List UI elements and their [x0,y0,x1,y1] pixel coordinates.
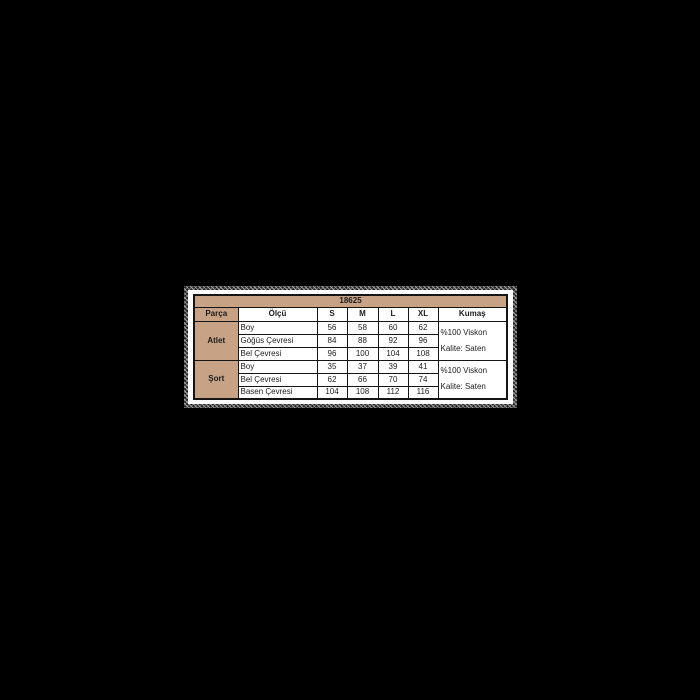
measure-value: 112 [378,386,408,399]
fabric-line: Kalite: Saten [441,383,505,391]
col-header-part: Parça [194,307,238,321]
section-name-atlet: Atlet [194,321,238,360]
measure-value: 96 [408,334,438,347]
col-header-measure: Ölçü [238,307,317,321]
measure-label: Basen Çevresi [238,386,317,399]
measure-value: 84 [317,334,347,347]
measure-value: 56 [317,321,347,334]
table-row: Parça Ölçü S M L XL Kumaş [194,307,507,321]
measure-value: 66 [347,373,378,386]
measure-value: 60 [378,321,408,334]
table-row: Şort Boy 35 37 39 41 %100 Viskon Kalite:… [194,360,507,373]
col-header-fabric: Kumaş [438,307,507,321]
measure-value: 62 [408,321,438,334]
measure-value: 74 [408,373,438,386]
measure-value: 104 [378,347,408,360]
col-header-size-xl: XL [408,307,438,321]
measure-value: 58 [347,321,378,334]
fabric-line: %100 Viskon [441,367,505,375]
table-row: Atlet Boy 56 58 60 62 %100 Viskon Kalite… [194,321,507,334]
measure-value: 108 [347,386,378,399]
measure-label: Boy [238,360,317,373]
measure-value: 108 [408,347,438,360]
product-code: 18625 [194,295,507,307]
size-chart-card: 18625 Parça Ölçü S M L XL Kumaş Atlet Bo… [188,290,513,404]
fabric-line: %100 Viskon [441,329,505,337]
measure-value: 104 [317,386,347,399]
measure-value: 92 [378,334,408,347]
measure-value: 39 [378,360,408,373]
black-background: 18625 Parça Ölçü S M L XL Kumaş Atlet Bo… [0,0,700,700]
fabric-line: Kalite: Saten [441,345,505,353]
measure-label: Boy [238,321,317,334]
col-header-size-l: L [378,307,408,321]
measure-value: 70 [378,373,408,386]
measure-value: 41 [408,360,438,373]
speckled-frame: 18625 Parça Ölçü S M L XL Kumaş Atlet Bo… [184,286,517,408]
table-row: 18625 [194,295,507,307]
size-chart-table: 18625 Parça Ölçü S M L XL Kumaş Atlet Bo… [193,294,508,400]
measure-value: 62 [317,373,347,386]
fabric-info-atlet: %100 Viskon Kalite: Saten [438,321,507,360]
measure-value: 100 [347,347,378,360]
col-header-size-m: M [347,307,378,321]
measure-value: 116 [408,386,438,399]
measure-label: Bel Çevresi [238,347,317,360]
measure-value: 96 [317,347,347,360]
measure-value: 37 [347,360,378,373]
measure-value: 35 [317,360,347,373]
section-name-sort: Şort [194,360,238,399]
fabric-info-sort: %100 Viskon Kalite: Saten [438,360,507,399]
col-header-size-s: S [317,307,347,321]
measure-label: Göğüs Çevresi [238,334,317,347]
measure-value: 88 [347,334,378,347]
measure-label: Bel Çevresi [238,373,317,386]
